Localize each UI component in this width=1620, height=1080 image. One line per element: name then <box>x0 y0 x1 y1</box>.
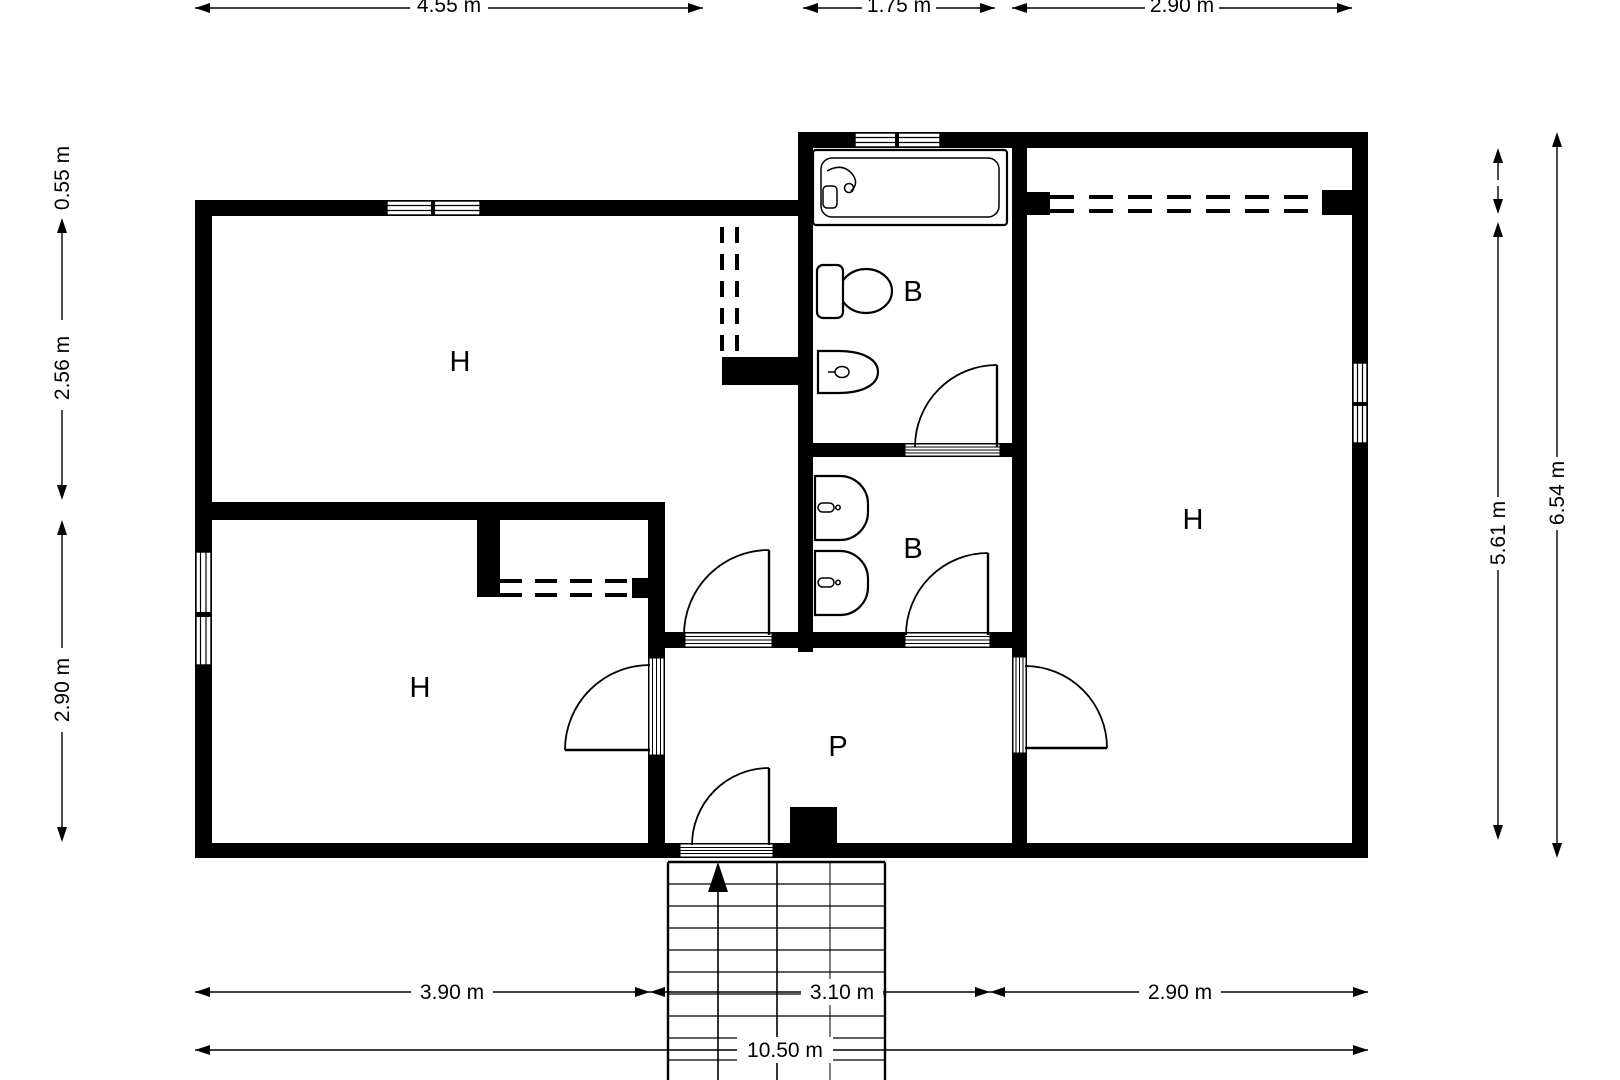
dim-bottom-total: 10.50 m <box>747 1039 823 1062</box>
door-bottom-left-room <box>565 665 650 750</box>
dim-bottom-1: 3.90 m <box>420 981 484 1004</box>
stair-walk-line <box>708 862 728 1080</box>
dimension-left-column: 0.55 m 2.56 m 2.90 m <box>51 146 74 842</box>
dimension-top-row: 4.55 m 1.75 m 2.90 m <box>195 0 1352 18</box>
threshold-bath-top <box>905 444 1000 456</box>
dim-right-outer: 6.54 m <box>1546 461 1569 525</box>
wall-niche-stub-right <box>1322 190 1352 215</box>
window-right <box>1353 363 1367 443</box>
threshold-vestibule <box>685 633 772 647</box>
threshold-right-room <box>1013 657 1026 753</box>
window-top-left <box>387 201 480 215</box>
wall-stub <box>722 357 813 385</box>
entry-arrow-icon <box>708 862 728 892</box>
room-label-right: H <box>1183 504 1204 536</box>
dim-left-3: 2.90 m <box>51 658 74 722</box>
walls <box>195 132 1368 858</box>
floor-plan-page: H H H B B P 4.55 m 1.75 m 2.90 m 0.55 m … <box>0 0 1620 1080</box>
wall-closet-left <box>477 520 500 597</box>
dim-top-1: 4.55 m <box>417 0 481 17</box>
dim-top-2: 1.75 m <box>867 0 931 17</box>
wall-closet-end <box>632 578 650 598</box>
dimension-bottom-row: 3.90 m 3.10 m 2.90 m 10.50 m <box>195 979 1368 1063</box>
sink-2 <box>815 551 868 615</box>
door-entry <box>692 768 769 845</box>
room-label-bath-top: B <box>903 276 922 308</box>
door-right-room <box>1025 666 1107 748</box>
dim-left-2: 2.56 m <box>51 336 74 400</box>
wall-left <box>195 200 212 843</box>
toilet <box>817 265 892 318</box>
dim-right-inner: 5.61 m <box>1487 501 1510 565</box>
room-label-bath-middle: B <box>903 533 922 565</box>
wall-niche-stub-left <box>1027 192 1050 215</box>
dim-right-niche-arrow <box>1493 148 1503 214</box>
room-label-hall: P <box>828 731 847 763</box>
threshold-entry <box>680 844 773 857</box>
wall-top-right <box>1027 132 1368 148</box>
threshold-bottom-left-room <box>649 658 664 755</box>
room-label-bottom-left: H <box>410 672 431 704</box>
dim-bottom-3: 2.90 m <box>1148 981 1212 1004</box>
wall-right <box>1352 132 1368 858</box>
dimension-right-column: 5.61 m 6.54 m <box>1487 132 1569 858</box>
chimney-block <box>790 807 837 843</box>
door-vestibule <box>684 550 769 635</box>
door-bath-top <box>915 365 997 447</box>
bathtub <box>813 150 1007 225</box>
floor-plan-svg: H H H B B P 4.55 m 1.75 m 2.90 m 0.55 m … <box>0 0 1620 1080</box>
bidet <box>818 351 878 393</box>
window-left <box>196 552 211 665</box>
door-bath-middle <box>906 553 988 635</box>
wall-bottom <box>195 843 1368 858</box>
sink-1 <box>815 476 868 540</box>
dim-left-1: 0.55 m <box>51 146 74 210</box>
room-label-top-left: H <box>450 346 471 378</box>
wall-mid-left <box>195 502 665 520</box>
wall-bath-left <box>798 132 813 652</box>
dim-top-3: 2.90 m <box>1150 0 1214 17</box>
wall-top-left <box>195 200 798 216</box>
threshold-bath-middle <box>905 633 990 647</box>
window-bathroom <box>855 133 940 147</box>
dim-bottom-2: 3.10 m <box>810 981 874 1004</box>
